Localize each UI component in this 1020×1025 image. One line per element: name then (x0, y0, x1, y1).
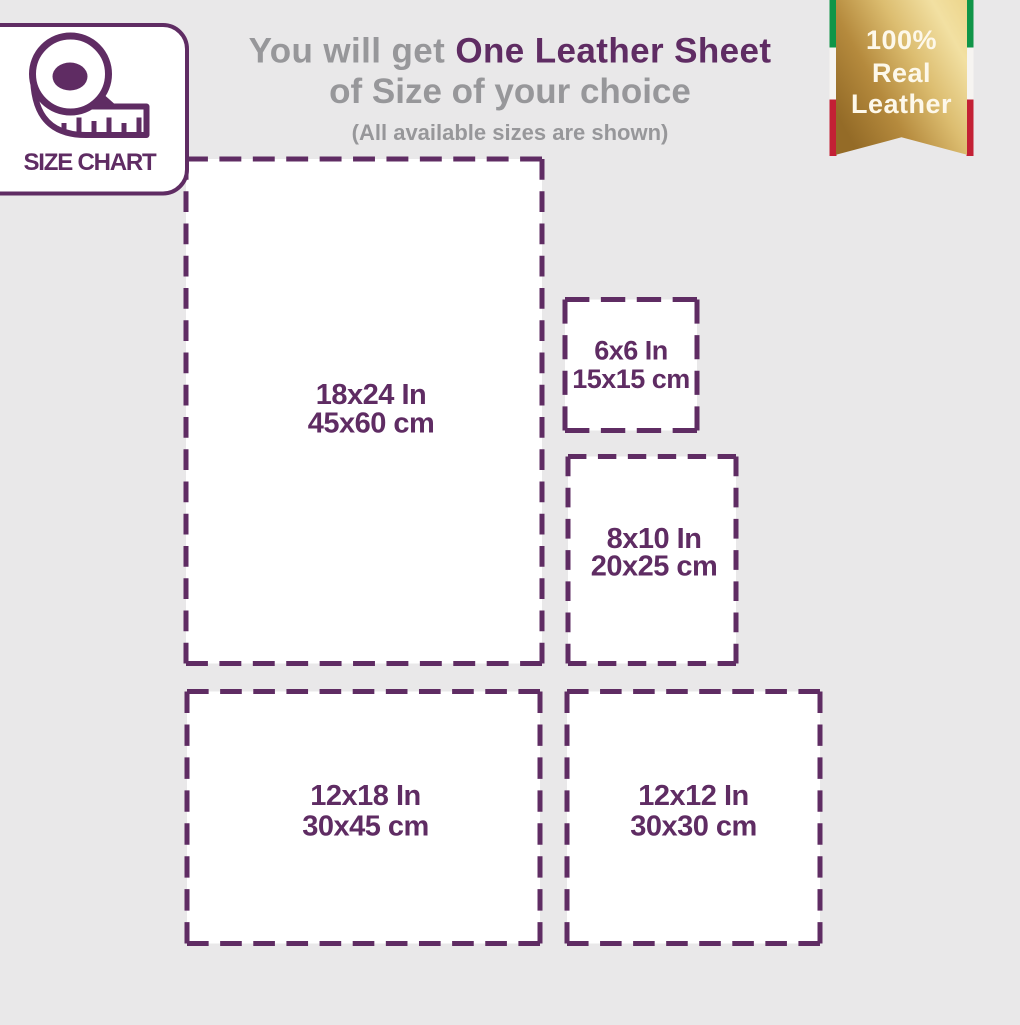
svg-text:15x15 cm: 15x15 cm (572, 364, 690, 394)
svg-text:30x30 cm: 30x30 cm (630, 811, 757, 843)
svg-text:(All available sizes are shown: (All available sizes are shown) (352, 120, 669, 145)
svg-text:20x25 cm: 20x25 cm (591, 551, 718, 583)
svg-text:30x45 cm: 30x45 cm (302, 811, 429, 843)
svg-text:12x12 In: 12x12 In (638, 780, 748, 812)
svg-text:of Size of your choice: of Size of your choice (329, 72, 691, 111)
svg-text:Leather: Leather (851, 89, 952, 119)
svg-text:SIZE CHART: SIZE CHART (23, 149, 157, 176)
svg-text:12x18 In: 12x18 In (310, 780, 420, 812)
svg-text:Real: Real (872, 58, 931, 88)
svg-text:You will get One Leather Sheet: You will get One Leather Sheet (249, 32, 772, 71)
svg-text:100%: 100% (866, 25, 937, 55)
svg-text:18x24 In: 18x24 In (316, 379, 426, 411)
svg-text:45x60 cm: 45x60 cm (308, 408, 435, 440)
svg-text:6x6 In: 6x6 In (594, 336, 668, 366)
